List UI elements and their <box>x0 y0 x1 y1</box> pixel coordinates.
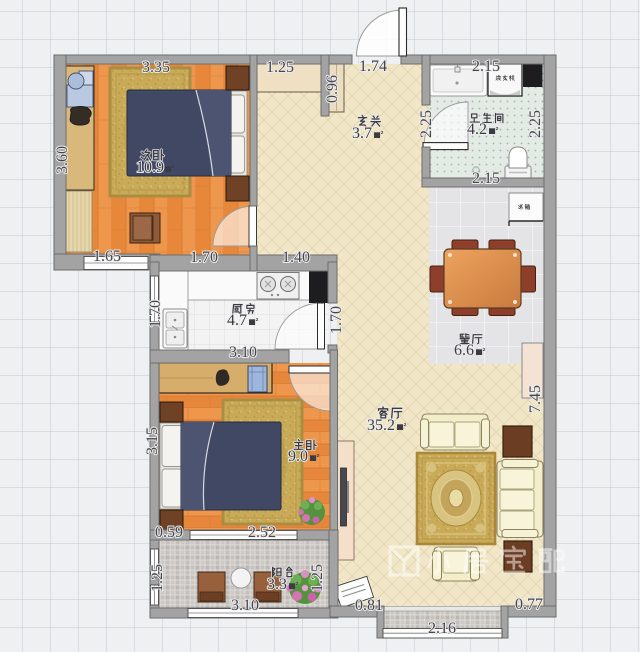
svg-text:2: 2 <box>256 317 259 322</box>
svg-text:0.77: 0.77 <box>515 596 543 613</box>
svg-text:2.25: 2.25 <box>527 110 544 138</box>
svg-text:9.0: 9.0 <box>288 448 308 465</box>
svg-text:1.25: 1.25 <box>266 59 294 76</box>
svg-text:1.70: 1.70 <box>328 306 345 334</box>
svg-text:0.59: 0.59 <box>155 524 183 541</box>
svg-text:3.60: 3.60 <box>54 146 71 174</box>
svg-text:3.7: 3.7 <box>352 125 372 142</box>
svg-text:3.35: 3.35 <box>142 59 170 76</box>
svg-text:4.7: 4.7 <box>227 312 247 329</box>
svg-text:2.15: 2.15 <box>472 58 500 75</box>
svg-text:2: 2 <box>496 126 499 131</box>
svg-text:1.40: 1.40 <box>282 249 310 266</box>
svg-text:1.25: 1.25 <box>309 564 326 592</box>
svg-text:3.10: 3.10 <box>231 597 259 614</box>
svg-text:2: 2 <box>483 347 486 352</box>
svg-text:2: 2 <box>317 453 320 458</box>
svg-text:1.25: 1.25 <box>149 564 166 592</box>
svg-text:3.10: 3.10 <box>229 344 257 361</box>
svg-text:2.16: 2.16 <box>428 620 456 637</box>
svg-text:1.70: 1.70 <box>147 300 164 328</box>
svg-text:10.9: 10.9 <box>136 159 164 176</box>
svg-text:2: 2 <box>296 581 299 586</box>
svg-text:2.52: 2.52 <box>248 524 276 541</box>
svg-text:2.25: 2.25 <box>418 110 435 138</box>
svg-text:3.3: 3.3 <box>267 576 287 593</box>
svg-text:3.15: 3.15 <box>144 427 161 455</box>
svg-text:2.15: 2.15 <box>472 170 500 187</box>
svg-text:7.45: 7.45 <box>527 385 544 413</box>
svg-text:2: 2 <box>381 130 384 135</box>
svg-text:2: 2 <box>172 164 175 169</box>
svg-text:4.2: 4.2 <box>467 121 487 138</box>
svg-text:2: 2 <box>404 422 407 427</box>
svg-text:1.65: 1.65 <box>93 248 121 265</box>
svg-text:0.81: 0.81 <box>355 597 383 614</box>
svg-text:6.6: 6.6 <box>454 342 474 359</box>
svg-text:35.2: 35.2 <box>367 417 395 434</box>
svg-text:1.74: 1.74 <box>359 58 387 75</box>
svg-text:0.96: 0.96 <box>324 75 341 103</box>
svg-text:1.70: 1.70 <box>190 249 218 266</box>
